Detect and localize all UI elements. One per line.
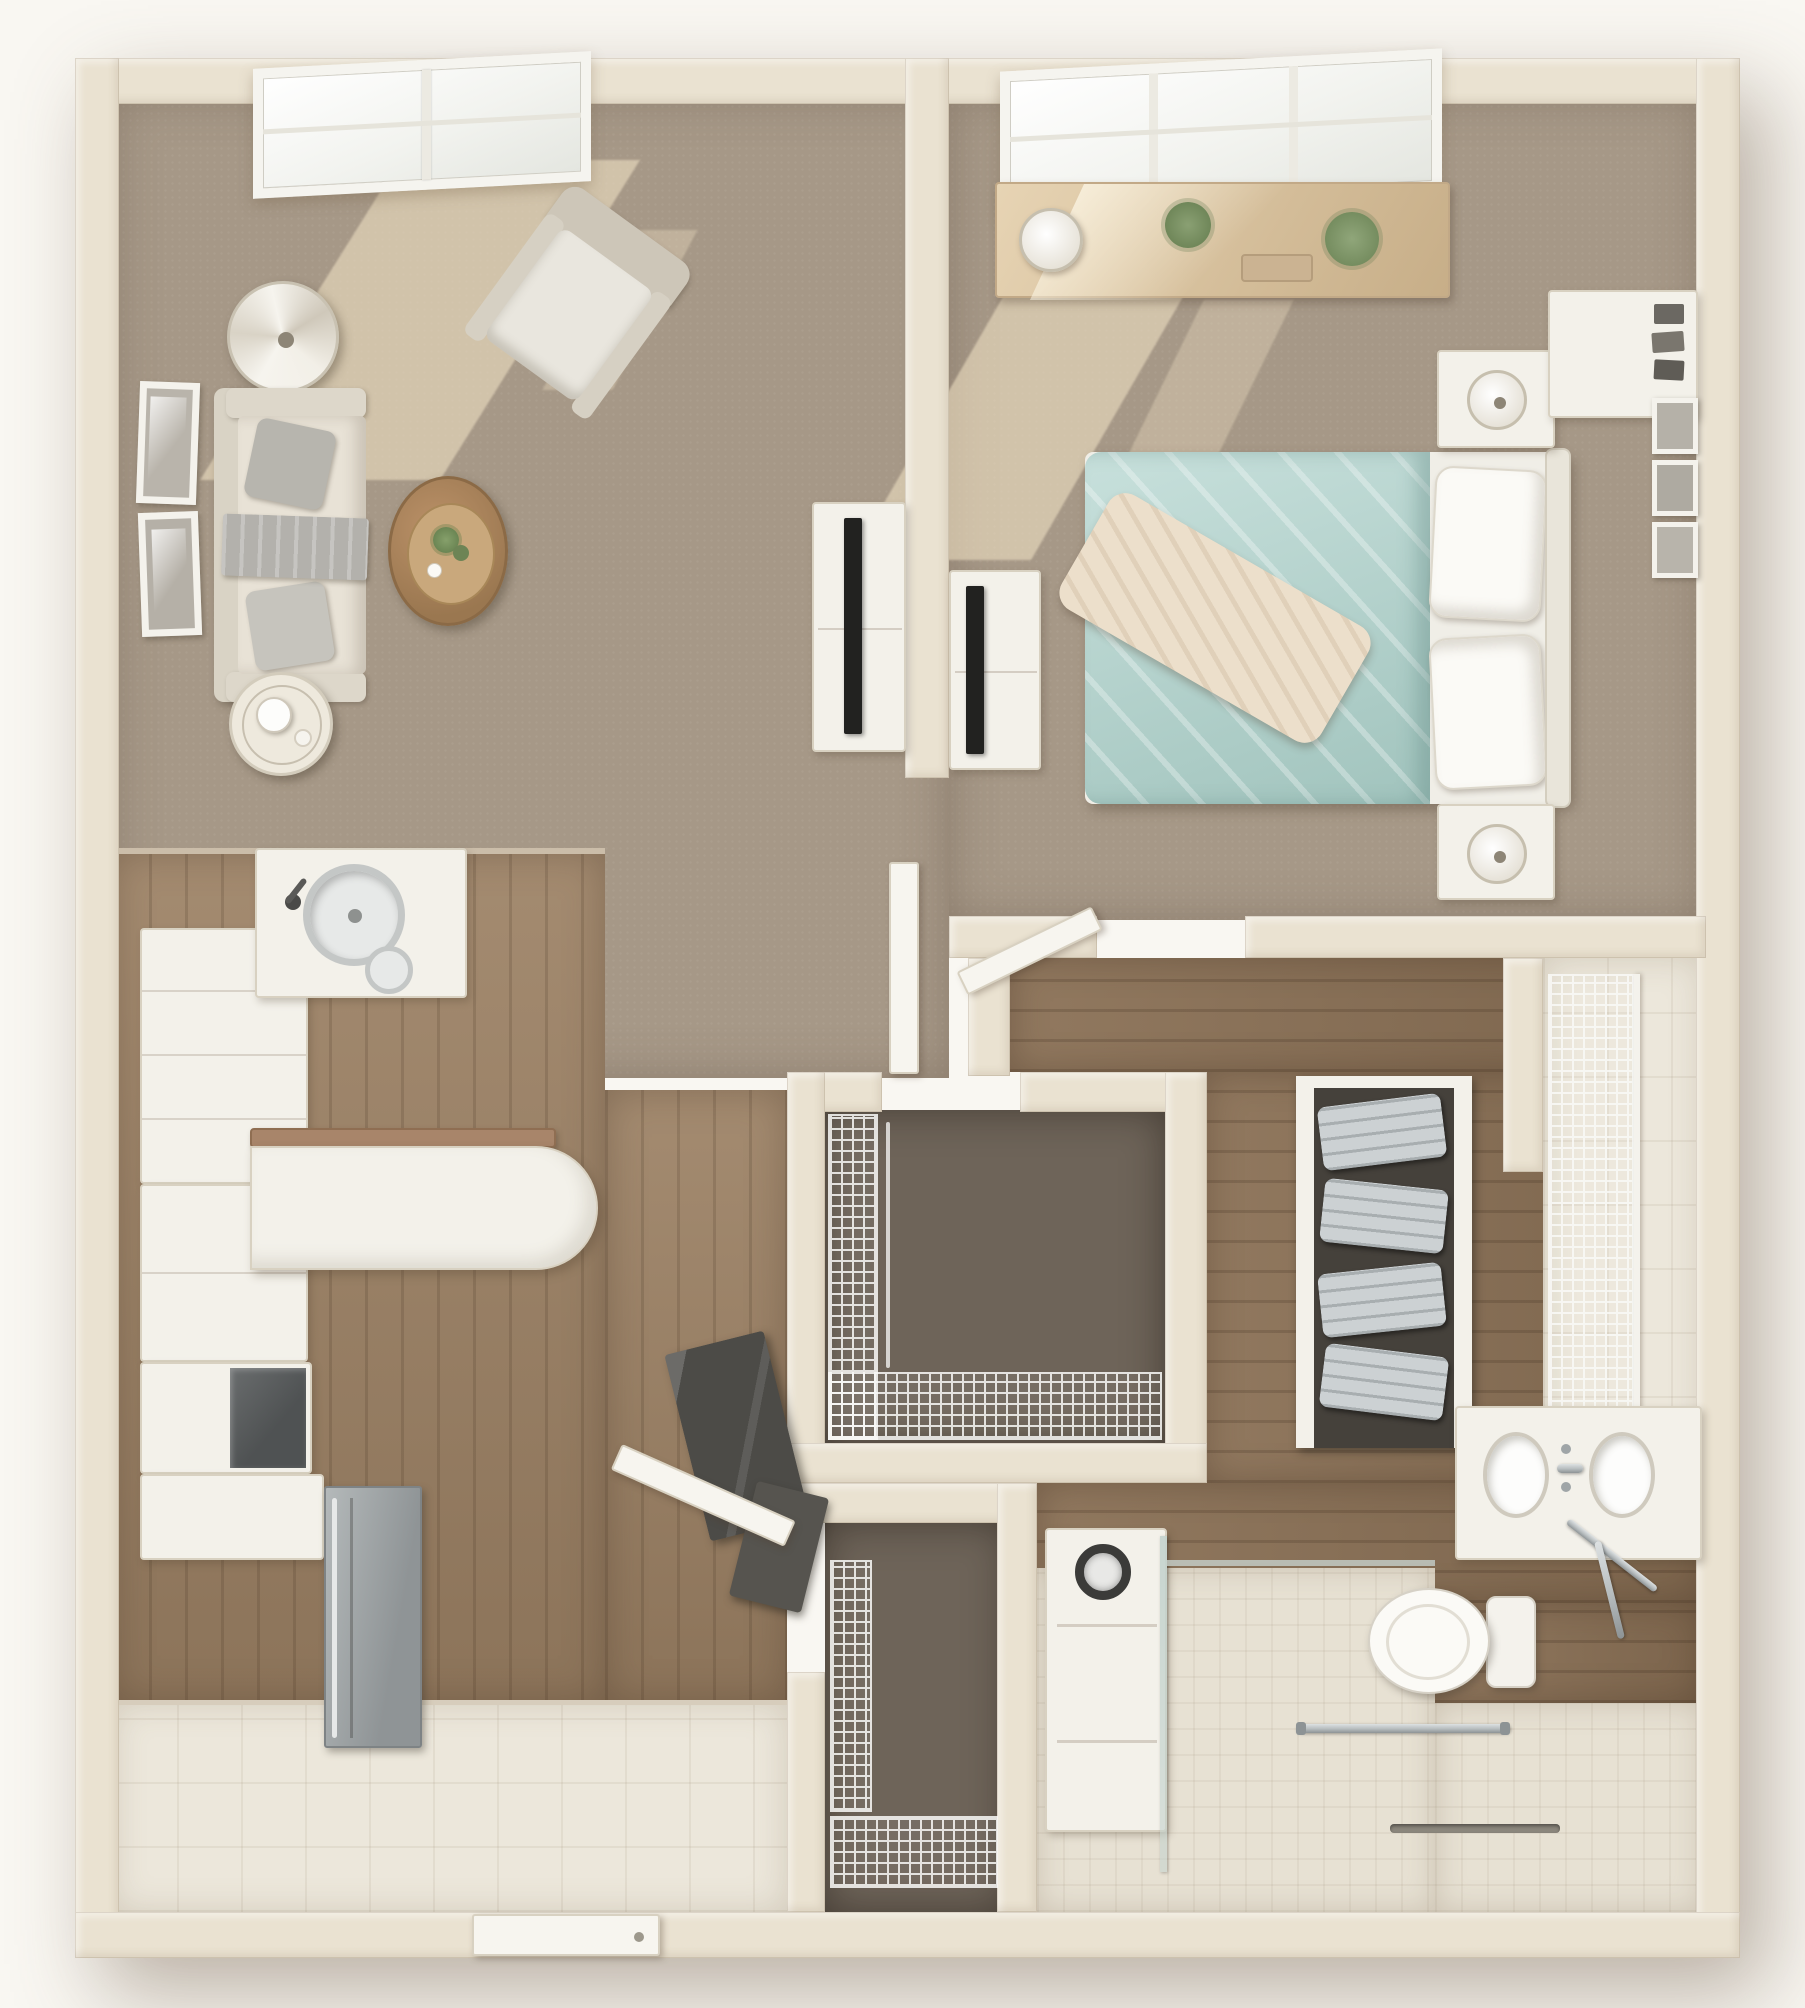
washer-panel-line (1057, 1624, 1157, 1627)
grab-bar (1296, 1724, 1510, 1733)
dishwasher-panel-line (350, 1498, 353, 1738)
linen-shelf-edge (1634, 974, 1640, 1448)
wall-closet-east (1165, 1072, 1207, 1483)
towel-unit-side-left (1296, 1076, 1314, 1448)
washer-door-ring (1075, 1544, 1131, 1600)
wall-living-bedroom-divider (905, 58, 949, 778)
bedroom-tv (966, 586, 984, 754)
peninsula-bar-top (250, 1128, 556, 1148)
wall-linen-west (1503, 958, 1543, 1172)
wall-bedroom-south-b (1245, 916, 1706, 958)
sofa-arm-top (226, 388, 366, 418)
bedroom-wall-frame-3 (1652, 522, 1698, 578)
bedroom-wall-frame-1 (1652, 398, 1698, 454)
lamp-finial (1494, 397, 1506, 409)
wall-art-frame-1 (136, 381, 200, 505)
living-tv (844, 518, 862, 734)
shelf-books (1651, 331, 1684, 353)
towel-unit-side-right (1454, 1076, 1472, 1448)
vanity-double-sink (1455, 1406, 1702, 1560)
washer-panel-line (1057, 1740, 1157, 1743)
wall-art-frame-2 (138, 511, 202, 637)
linen-wire-shelving (1548, 974, 1634, 1448)
wall-closet-south (787, 1443, 1207, 1483)
coffee-table-tray (407, 503, 495, 605)
table-plant-2 (453, 545, 469, 561)
floor-plan-stage (0, 0, 1805, 2008)
sofa-throw (221, 513, 369, 580)
nightstand-bottom (1437, 804, 1555, 900)
toilet-seat-line (1386, 1604, 1470, 1680)
tv-console-bedroom (949, 570, 1041, 770)
kitchen-cabinet-glass (140, 1362, 312, 1474)
floor-lamp (227, 281, 339, 393)
bed-pillow-bottom (1428, 633, 1548, 791)
linear-drain (1390, 1824, 1560, 1833)
storage-wire-shelf-bottom (830, 1816, 998, 1888)
walk-in-closet-door-open (889, 862, 919, 1074)
peninsula-counter (250, 1146, 598, 1270)
wall-right (1696, 58, 1740, 1958)
storage-wire-shelf-left (830, 1560, 872, 1812)
lamp-finial (1494, 851, 1506, 863)
headboard (1545, 448, 1571, 808)
dishwasher-handle (332, 1498, 337, 1738)
closet-hang-rod (886, 1122, 890, 1368)
folded-towels (1317, 1262, 1447, 1339)
dishwasher (324, 1486, 422, 1748)
toilet-bowl (1368, 1588, 1490, 1694)
side-table (229, 672, 333, 776)
bedroom-dresser (995, 182, 1450, 298)
wood-tile-threshold (113, 1700, 787, 1705)
bed-pillow-top (1428, 465, 1548, 623)
towel-unit-top (1296, 1076, 1472, 1088)
shower-floor-bottom (1435, 1703, 1702, 1912)
wall-storage-east (997, 1483, 1037, 1912)
vanity-faucet (1557, 1464, 1583, 1473)
dresser-plant-1 (1165, 202, 1211, 248)
lamp-finial (278, 332, 294, 348)
grab-bar-flange (1296, 1722, 1306, 1735)
dresser-lamp (1019, 208, 1083, 272)
glass-cabinet-panel (230, 1368, 306, 1468)
bed (1085, 452, 1569, 804)
closet-wire-shelf-bottom (828, 1372, 1162, 1440)
wall-closet-west-upper (787, 1072, 825, 1504)
front-door (472, 1914, 660, 1956)
entry-floor (113, 1703, 787, 1912)
frame-glare (151, 528, 188, 621)
teapot (256, 697, 292, 733)
table-cup (427, 563, 442, 578)
sofa-pillow-bottom (244, 580, 336, 672)
grab-bar-flange (1500, 1722, 1510, 1735)
wall-bottom (75, 1912, 1740, 1958)
teacup (294, 729, 312, 747)
door-handle (634, 1932, 644, 1942)
kitchen-counter-seg (140, 1474, 324, 1560)
vanity-sink-left (1483, 1432, 1549, 1518)
dresser-tray (1241, 254, 1313, 282)
nightstand-lamp (1467, 824, 1527, 884)
nightstand-lamp (1467, 370, 1527, 430)
wall-left (75, 58, 119, 1958)
vanity-faucet-handle (1561, 1444, 1571, 1454)
living-room-window (253, 51, 591, 199)
toilet (1368, 1588, 1540, 1696)
vanity-sink-right (1589, 1432, 1655, 1518)
shelf-books (1653, 359, 1684, 381)
nightstand-top (1437, 350, 1555, 448)
folded-towels (1319, 1178, 1449, 1255)
sofa (214, 388, 366, 702)
shelf-books (1654, 304, 1684, 324)
coffee-table (388, 476, 508, 626)
washer (1045, 1528, 1167, 1832)
frame-glare (147, 396, 186, 487)
sink-drain (348, 909, 362, 923)
folded-towels (1317, 1093, 1448, 1172)
window-mullion-h (1010, 115, 1432, 142)
sofa-pillow-top (243, 417, 338, 512)
toilet-tank (1486, 1596, 1536, 1688)
glass-partition (1160, 1536, 1167, 1872)
shower-curb-line (1167, 1560, 1435, 1566)
dresser-plant-2 (1325, 212, 1379, 266)
wall-closet-west-lower (787, 1672, 825, 1912)
towel-shelf-unit (1296, 1076, 1472, 1448)
kitchen-prep-sink (365, 946, 413, 994)
folded-towels (1319, 1343, 1450, 1422)
kitchen-sink-counter (255, 848, 467, 998)
bedroom-wall-frame-2 (1652, 460, 1698, 516)
vanity-faucet-handle (1561, 1482, 1571, 1492)
